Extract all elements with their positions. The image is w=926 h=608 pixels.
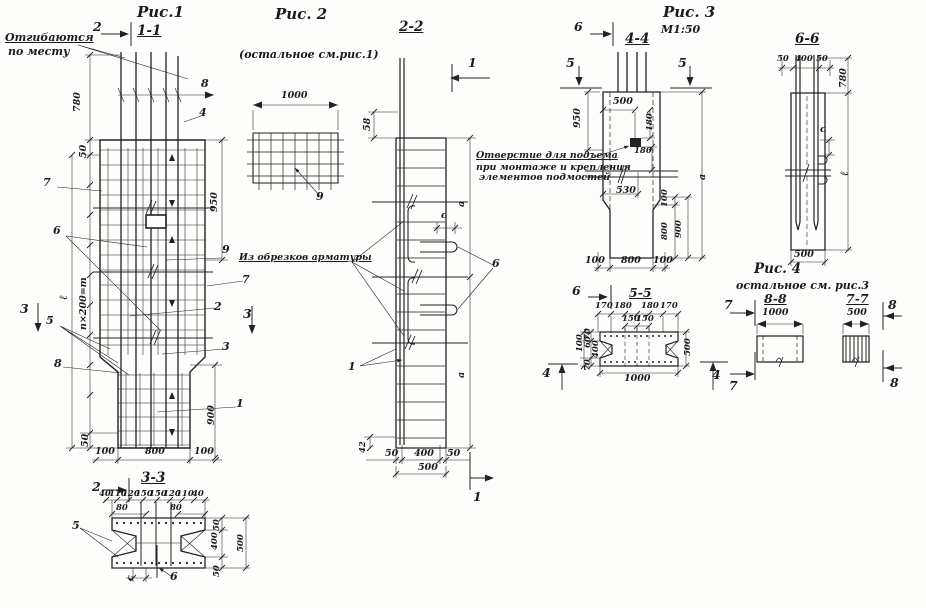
cut-marker-8-bottom: 8 [890, 377, 899, 390]
sec55-dim: 150 [636, 315, 654, 324]
cut-marker-7-top: 7 [724, 299, 733, 312]
cut-marker-7-bottom: 7 [729, 380, 738, 393]
cut-marker-2-top: 2 [93, 21, 102, 34]
sec55-dim: 180 [641, 302, 659, 311]
dim-950: 950 [210, 192, 220, 212]
sec44-note-line3: элементов подмостей [479, 173, 610, 183]
fig1-note-line2: по месту [8, 46, 70, 57]
sec44-title: 4-4 [625, 33, 649, 47]
dim-800: 800 [145, 447, 165, 457]
sec44-marker-5-right: 5 [678, 57, 687, 70]
sec33-dim-50a: 50 [213, 519, 222, 531]
sec33-dim: 40 [192, 490, 204, 499]
sec66-title: 6-6 [795, 33, 819, 47]
sec55-marker-4-right: 4 [712, 369, 721, 382]
sec33-dim-400: 400 [211, 532, 220, 550]
sec44-dim-500: 500 [613, 97, 633, 107]
dim-50-top: 50 [79, 145, 89, 158]
sec44-marker-6-bottom: 6 [572, 285, 581, 298]
sec88-dim-1000: 1000 [762, 308, 788, 318]
sec33-title: 3-3 [141, 472, 165, 486]
fig3-scale: М1:50 [661, 24, 700, 35]
item-6: 6 [53, 225, 61, 236]
cut-marker-3-right: 3 [243, 308, 252, 321]
sec33-dim-500: 500 [237, 534, 246, 552]
sec44-dim-100-left: 100 [585, 256, 605, 266]
fig2-dim-1000: 1000 [281, 91, 307, 101]
sec55-dim: 400 [592, 340, 601, 358]
dim-spacing: n×200=m [79, 277, 89, 330]
sec44-note-line1: Отверстие для подъема [476, 151, 618, 161]
sec44-dim-800-bottom: 800 [621, 256, 641, 266]
dim-100-left: 100 [95, 447, 115, 457]
engineering-drawing-sheet: Рис.1 1-1 Отгибаются по месту 2 780 50 8… [0, 0, 926, 608]
sec66-dim-500: 500 [794, 250, 814, 260]
sec55-dim: 180 [614, 302, 632, 311]
fig4-title: Рис. 4 [754, 263, 801, 277]
sec44-dim-530: 530 [616, 186, 636, 196]
fig1-note-line1: Отгибаются [5, 32, 94, 43]
sec22-title: 2-2 [399, 21, 423, 35]
dim-100-right: 100 [194, 447, 214, 457]
fig2-item-9: 9 [316, 191, 324, 202]
item-1: 1 [236, 398, 244, 409]
sec66-dim-780: 780 [839, 68, 849, 88]
sec33-dim-50b: 50 [213, 565, 222, 577]
drawing-linework [0, 0, 926, 608]
dim-900: 900 [207, 405, 217, 425]
sec44-dim-900v: 900 [675, 220, 684, 238]
sec88-title: 8-8 [764, 293, 787, 306]
sec44-dim-180a: 180 [646, 113, 655, 131]
sec66-dim-50-right: 50 [816, 55, 828, 64]
cut-marker-8-top: 8 [888, 299, 897, 312]
item-7-left: 7 [43, 177, 51, 188]
sec44-dim-100-right: 100 [653, 256, 673, 266]
fig1-cut-label: 1-1 [137, 25, 161, 39]
sec55-marker-4-left: 4 [542, 367, 551, 380]
sec33-item-6: 6 [170, 571, 178, 582]
sec33-dim-80-right: 80 [170, 504, 182, 513]
sec22-dim-58: 58 [363, 118, 373, 131]
sec44-marker-6-top: 6 [574, 21, 583, 34]
sec77-title: 7-7 [846, 293, 869, 306]
sec22-dim-500: 500 [418, 463, 438, 473]
item-2: 2 [214, 301, 222, 312]
fig2-note: (остальное см.рис.1) [239, 49, 379, 60]
item-9: 9 [222, 244, 230, 255]
fig3-title: Рис. 3 [663, 5, 715, 20]
sec22-dim-400: 400 [414, 449, 434, 459]
sec33-dim-c: с [126, 575, 136, 581]
sec44-marker-5-left: 5 [566, 57, 575, 70]
sec55-title: 5-5 [629, 287, 652, 300]
sec44-dim-a: а [698, 174, 708, 180]
sec22-dim-50-right: 50 [447, 449, 460, 459]
sec22-marker-1-bottom: 1 [473, 491, 482, 504]
sec44-dim-950: 950 [573, 108, 583, 128]
sec22-item-1: 1 [348, 361, 356, 372]
item-4: 4 [199, 107, 207, 118]
fig1-title: Рис.1 [137, 5, 184, 20]
dim-780: 780 [73, 92, 83, 112]
item-8-low: 8 [54, 358, 62, 369]
sec44-dim-100v: 100 [661, 189, 670, 207]
item-7-right: 7 [242, 274, 250, 285]
sec55-dim-1000: 1000 [624, 374, 650, 384]
sec22-item-6: 6 [492, 258, 500, 269]
sec55-dim: 170 [595, 302, 613, 311]
sec22-dim-42: 42 [359, 441, 368, 453]
sec77-dim-500: 500 [847, 308, 867, 318]
sec55-dim-500: 500 [684, 338, 693, 356]
sec55-dim: 70 [584, 359, 593, 371]
sec44-dim-180b: 180 [634, 147, 652, 156]
fig4-note: остальное см. рис.3 [736, 280, 869, 291]
sec55-dim: 170 [660, 302, 678, 311]
sec66-dim-400: 400 [795, 55, 813, 64]
sec33-dim-80-left: 80 [116, 504, 128, 513]
sec44-dim-800v: 800 [661, 222, 670, 240]
sec22-marker-1-top: 1 [468, 57, 477, 70]
sec66-dim-c: с [820, 125, 826, 135]
cut-marker-3-left: 3 [20, 303, 29, 316]
dim-50-bottom: 50 [81, 434, 91, 447]
dim-length-l: ℓ [58, 295, 69, 300]
sec22-dim-50-left: 50 [385, 449, 398, 459]
sec22-note: Из обрезков арматуры [239, 253, 372, 263]
sec22-dim-a-bottom: а [457, 372, 467, 378]
item-5: 5 [46, 315, 54, 326]
sec22-dim-c: с [441, 211, 447, 221]
sec22-dim-a-top: а [457, 201, 467, 207]
item-3: 3 [222, 341, 230, 352]
fig2-title: Рис. 2 [275, 7, 327, 22]
sec66-dim-length: ℓ [839, 171, 850, 176]
sec66-dim-50-left: 50 [777, 55, 789, 64]
item-8: 8 [201, 78, 209, 89]
sec33-item-5: 5 [72, 520, 80, 531]
